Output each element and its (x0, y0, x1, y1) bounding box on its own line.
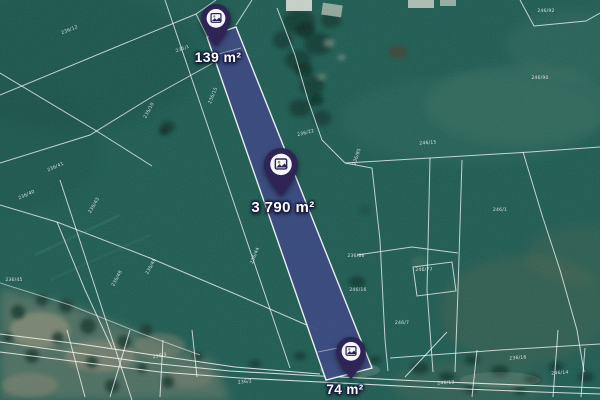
parcel-number-label: 246/14 (551, 369, 569, 376)
parcel-area-label: 74 m² (326, 382, 363, 397)
parcel-number-label: 236/16 (509, 354, 527, 361)
parcel-number-label: 246/92 (537, 8, 554, 14)
parcel-number-label: 236/86 (347, 253, 364, 259)
map-viewport[interactable]: 236/12235/1236/10236/41236/40236/43236/4… (0, 0, 600, 400)
parcel-number-label: 246/7 (395, 320, 409, 326)
parcel-area-label: 3 790 m² (251, 199, 314, 216)
map-pin-icon[interactable] (264, 148, 298, 196)
parcel-number-label: 246/15 (419, 139, 437, 146)
parcel-number-label: 236/45 (5, 277, 22, 283)
parcel-number-label: 246/90 (531, 75, 548, 81)
parcel-number-label: 246/1 (493, 207, 507, 213)
parcel-number-label: 246/13 (437, 379, 455, 386)
parcel-number-label: 246/77 (415, 267, 432, 273)
parcel-number-label: 246/16 (349, 287, 366, 293)
parcel-area-label: 139 m² (195, 49, 242, 65)
map-pin-icon[interactable] (336, 337, 366, 379)
map-pin-icon[interactable] (201, 4, 231, 46)
